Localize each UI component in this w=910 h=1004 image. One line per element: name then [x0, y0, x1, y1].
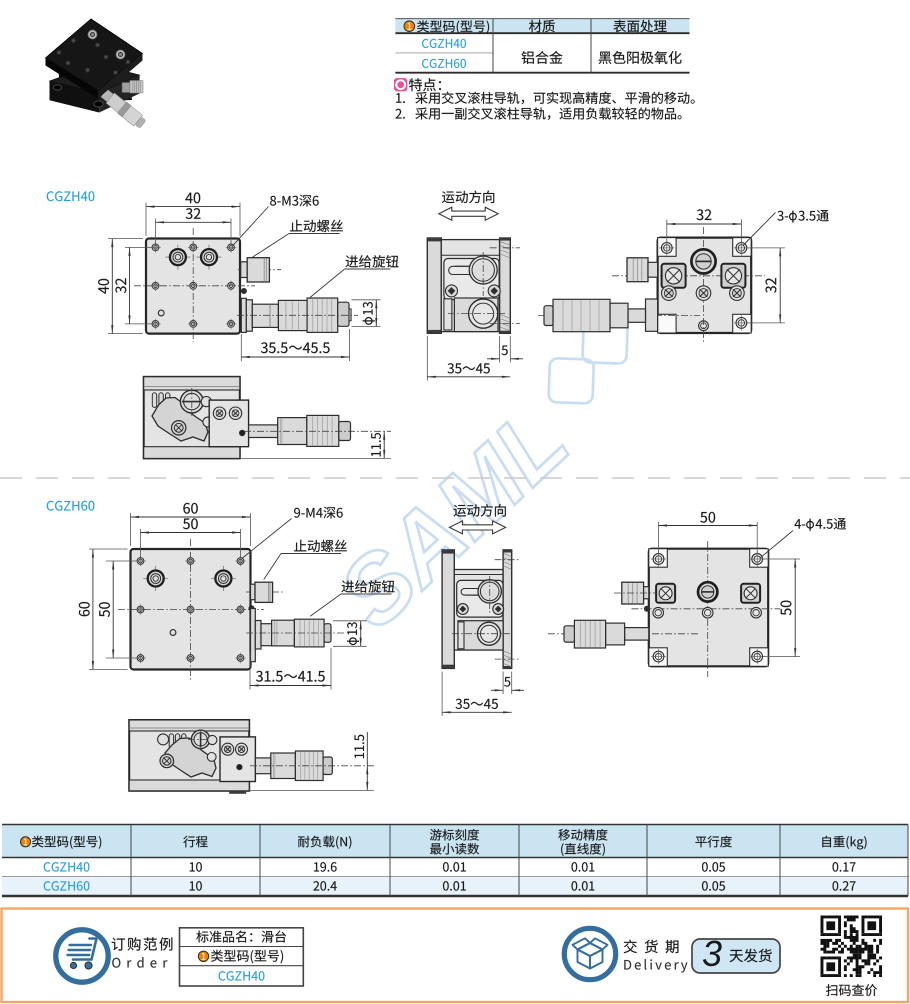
svg-text:3: 3: [702, 933, 722, 974]
